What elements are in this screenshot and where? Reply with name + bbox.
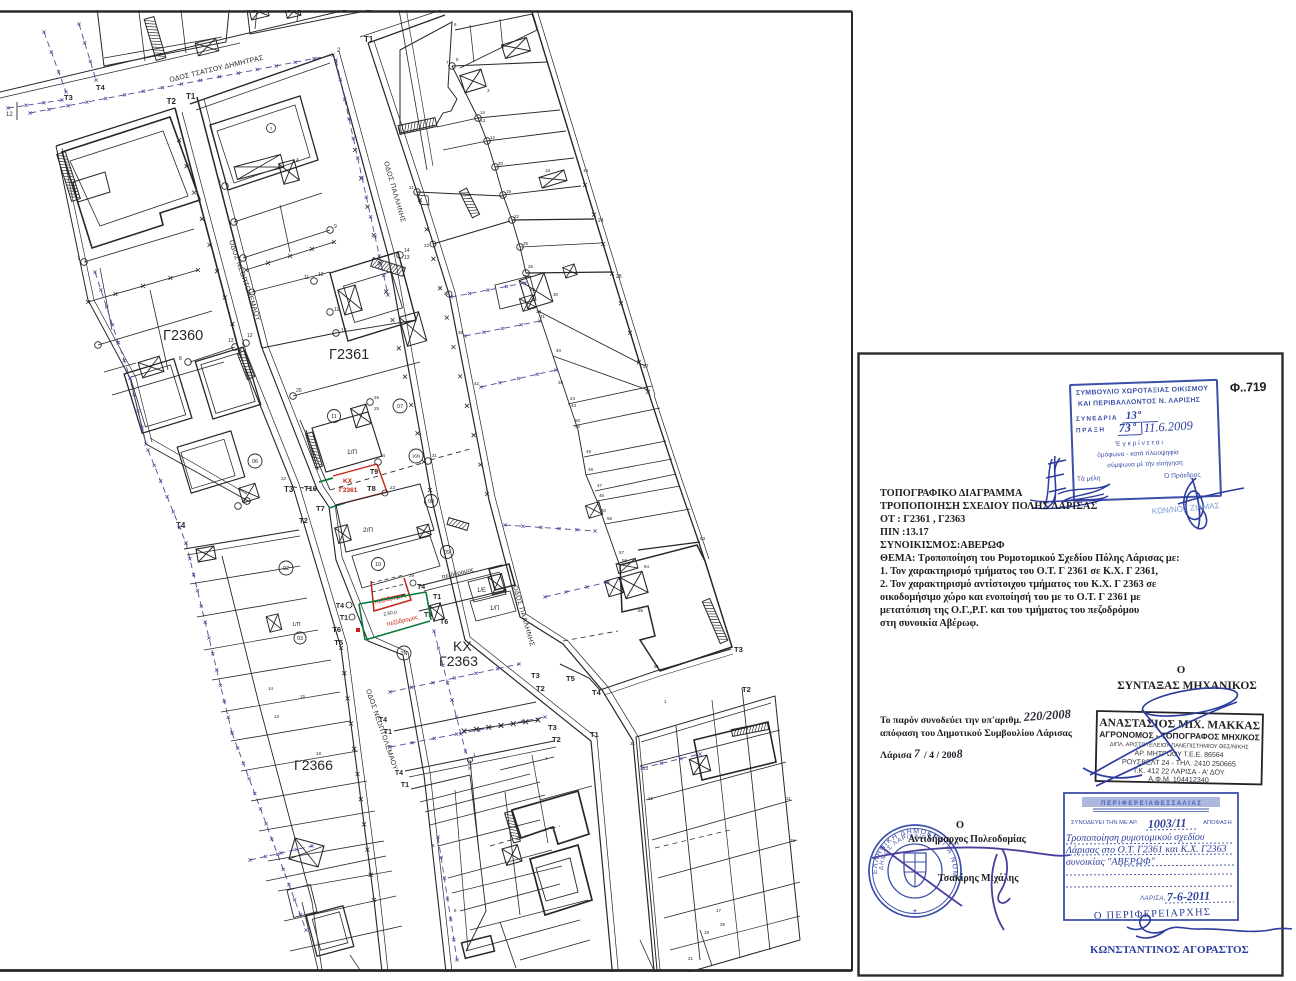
svg-text:58: 58 (607, 516, 613, 521)
svg-text:50: 50 (575, 418, 581, 423)
svg-text:15: 15 (300, 694, 306, 699)
svg-text:T3: T3 (284, 485, 294, 494)
svg-text:23: 23 (424, 243, 430, 248)
svg-text:ΣΥΝΟΔΕΥΕΙ ΤΗΝ ΜΕ ΑΡ.: ΣΥΝΟΔΕΥΕΙ ΤΗΝ ΜΕ ΑΡ. (1071, 820, 1138, 826)
svg-text:31: 31 (432, 453, 438, 458)
svg-text:11: 11 (304, 275, 309, 281)
svg-text:T8: T8 (367, 484, 376, 493)
svg-text:T1: T1 (186, 92, 196, 101)
svg-text:5: 5 (218, 179, 221, 185)
svg-text:21: 21 (688, 956, 694, 961)
svg-text:T4: T4 (395, 770, 403, 777)
svg-text:26: 26 (528, 264, 534, 269)
svg-text:16Ν: 16Ν (412, 454, 420, 459)
svg-text:ΠΙΝ :13.17: ΠΙΝ :13.17 (880, 527, 929, 538)
svg-text:Γ2361: Γ2361 (339, 487, 358, 494)
svg-text:T1: T1 (590, 730, 599, 739)
svg-text:25: 25 (523, 241, 529, 246)
svg-text:Τὰ μέλη: Τὰ μέλη (1077, 474, 1101, 483)
svg-text:Ο: Ο (1177, 664, 1186, 676)
svg-text:/ 4 / 200: / 4 / 200 (923, 750, 956, 761)
svg-text:13: 13 (404, 255, 410, 261)
svg-text:11: 11 (786, 796, 791, 801)
svg-text:Γ2366: Γ2366 (294, 757, 333, 773)
svg-text:ΚΧ: ΚΧ (453, 638, 472, 654)
svg-text:14: 14 (480, 110, 486, 115)
svg-text:21: 21 (630, 741, 636, 746)
svg-text:12: 12 (648, 796, 654, 801)
svg-text:06: 06 (252, 459, 258, 465)
svg-text:18: 18 (545, 168, 551, 173)
svg-text:42: 42 (474, 381, 480, 386)
svg-text:μετατόπιση της Ο.Γ.,Ρ.Γ. και τ: μετατόπιση της Ο.Γ.,Ρ.Γ. και του τμήματο… (880, 604, 1139, 616)
svg-text:Αντιδήμαρχος Πολεοδομίας: Αντιδήμαρχος Πολεοδομίας (908, 833, 1027, 845)
svg-text:03: 03 (297, 636, 303, 642)
svg-text:T2: T2 (552, 735, 561, 744)
svg-text:απόφαση του Δημοτικού Συμβουλί: απόφαση του Δημοτικού Συμβουλίου Λάρισας (880, 728, 1073, 739)
svg-text:Ο: Ο (956, 820, 964, 831)
svg-text:28: 28 (616, 274, 622, 280)
svg-text:T7: T7 (316, 504, 325, 513)
svg-text:συνοικίας "ΑΒΕΡΩΦ": συνοικίας "ΑΒΕΡΩΦ" (1066, 856, 1156, 868)
svg-text:οικοδομήσιμο χώρο και ενοποίησ: οικοδομήσιμο χώρο και ενοποίησή του με τ… (880, 591, 1141, 603)
svg-text:ΣΥΝΟΙΚΙΣΜΟΣ:ΑΒΕΡΩΦ: ΣΥΝΟΙΚΙΣΜΟΣ:ΑΒΕΡΩΦ (880, 540, 1005, 551)
svg-text:1/Π: 1/Π (292, 622, 301, 628)
svg-text:12: 12 (6, 112, 13, 118)
svg-text:Γ2361: Γ2361 (329, 347, 369, 363)
svg-text:T4: T4 (336, 603, 344, 610)
svg-text:22: 22 (514, 214, 520, 219)
svg-text:27: 27 (444, 291, 450, 296)
svg-text:ΤΟΠΟΓΡΑΦΙΚΟ ΔΙΑΓΡΑΜΜΑ: ΤΟΠΟΓΡΑΦΙΚΟ ΔΙΑΓΡΑΜΜΑ (880, 488, 1023, 499)
svg-text:13: 13 (228, 338, 234, 344)
svg-text:30: 30 (553, 292, 559, 297)
svg-text:10: 10 (318, 272, 324, 278)
svg-text:36: 36 (458, 330, 464, 335)
svg-text:Γ2363: Γ2363 (439, 653, 478, 669)
svg-text:στη συνοικία Αβέρωφ.: στη συνοικία Αβέρωφ. (880, 618, 979, 629)
svg-text:26: 26 (374, 395, 380, 400)
svg-text:T3: T3 (734, 645, 743, 654)
svg-text:ΣΥΝΕΔΡΙΑ: ΣΥΝΕΔΡΙΑ (1076, 415, 1118, 423)
svg-text:13: 13 (643, 766, 649, 771)
svg-text:1/Ε: 1/Ε (477, 588, 486, 594)
svg-text:ΘΕΜΑ: Τροποποίηση του Ρυμοτομι: ΘΕΜΑ: Τροποποίηση του Ρυμοτομικού Σχεδίο… (880, 553, 1180, 564)
svg-text:Α.Φ.Μ. 104412340: Α.Φ.Μ. 104412340 (1148, 774, 1209, 784)
svg-text:8: 8 (179, 356, 182, 362)
svg-text:ΤΡΟΠΟΠΟΙΗΣΗ ΣΧΕΔΙΟΥ ΠΟΛΗΣ ΛΑΡΙ: ΤΡΟΠΟΠΟΙΗΣΗ ΣΧΕΔΙΟΥ ΠΟΛΗΣ ΛΑΡΙΣΑΣ (880, 501, 1097, 512)
svg-text:T2: T2 (536, 684, 545, 693)
svg-text:Φ..719: Φ..719 (1230, 380, 1267, 395)
svg-text:18: 18 (316, 751, 322, 756)
svg-text:43: 43 (570, 396, 576, 401)
svg-text:Τροποποίηση ρυμοτομικού σχεδίο: Τροποποίηση ρυμοτομικού σχεδίου (1066, 832, 1205, 844)
svg-text:46: 46 (599, 493, 605, 498)
svg-text:39: 39 (558, 380, 564, 385)
svg-text:41: 41 (540, 314, 546, 319)
svg-text:21: 21 (409, 185, 415, 190)
svg-text:73: 73 (1118, 420, 1131, 435)
svg-text:ΟΤ : Γ2361 , Γ2363: ΟΤ : Γ2361 , Γ2363 (880, 514, 965, 525)
svg-text:14: 14 (404, 248, 410, 254)
svg-text:Λάρισα: Λάρισα (880, 750, 912, 761)
svg-text:T6: T6 (440, 619, 448, 626)
svg-text:1/Π: 1/Π (490, 606, 499, 612)
svg-text:47: 47 (597, 483, 603, 488)
svg-text:16: 16 (583, 168, 589, 173)
svg-text:T3: T3 (531, 671, 540, 680)
svg-text:23: 23 (390, 485, 396, 490)
svg-text:*: * (913, 908, 917, 919)
svg-text:T1: T1 (384, 729, 392, 736)
svg-text:T1: T1 (340, 615, 348, 622)
svg-text:ΠΡΑΞΗ: ΠΡΑΞΗ (1076, 426, 1106, 434)
svg-text:37: 37 (643, 364, 649, 370)
svg-text:2/Π: 2/Π (363, 527, 373, 534)
svg-text:09: 09 (444, 550, 450, 556)
svg-text:12: 12 (490, 135, 496, 140)
svg-text:20: 20 (296, 388, 302, 394)
svg-text:T4: T4 (417, 584, 425, 591)
svg-text:40: 40 (556, 348, 562, 353)
svg-text:53: 53 (700, 536, 706, 541)
svg-text:15: 15 (790, 838, 796, 843)
svg-text:22: 22 (281, 476, 287, 481)
svg-text:13: 13 (480, 118, 486, 123)
svg-text:24: 24 (598, 218, 604, 224)
svg-text:19: 19 (506, 189, 512, 194)
svg-text:T2: T2 (742, 685, 751, 694)
svg-text:T9: T9 (370, 469, 378, 476)
svg-text:43: 43 (571, 403, 577, 408)
svg-text:12: 12 (334, 307, 340, 313)
svg-text:Γ2360: Γ2360 (163, 328, 203, 344)
svg-text:T1: T1 (433, 594, 441, 601)
svg-text:9: 9 (334, 224, 337, 230)
svg-text:T1: T1 (401, 782, 409, 789)
svg-text:17: 17 (716, 908, 722, 913)
svg-text:2Ν: 2Ν (400, 651, 407, 657)
svg-text:T3: T3 (64, 93, 73, 102)
svg-text:48: 48 (588, 467, 594, 472)
svg-text:T5: T5 (566, 674, 575, 683)
svg-text:13: 13 (274, 714, 280, 719)
svg-text:2. Τον χαρακτηρισμό αντίστοιχο: 2. Τον χαρακτηρισμό αντίστοιχου τμήματος… (880, 578, 1157, 590)
svg-text:20: 20 (498, 161, 504, 166)
svg-text:25: 25 (720, 922, 726, 927)
svg-text:T2: T2 (167, 97, 177, 106)
svg-text:T2: T2 (299, 516, 308, 525)
svg-text:7-6-2011: 7-6-2011 (1167, 888, 1211, 904)
svg-text:08: 08 (428, 499, 434, 505)
svg-text:11: 11 (331, 414, 337, 420)
svg-text:12: 12 (247, 333, 253, 339)
svg-text:Το παρόν συνοδεύει την υπ'αριθ: Το παρόν συνοδεύει την υπ'αριθμ. (880, 715, 1022, 726)
svg-text:10: 10 (375, 562, 381, 568)
svg-text:ΑΠΟΦΑΣΗ: ΑΠΟΦΑΣΗ (1203, 820, 1232, 826)
svg-text:1003/11: 1003/11 (1148, 816, 1187, 831)
svg-text:7: 7 (77, 256, 80, 262)
svg-text:ΚΧ: ΚΧ (343, 478, 353, 485)
svg-text:24: 24 (380, 453, 386, 458)
svg-text:T5: T5 (334, 638, 343, 647)
svg-text:T6: T6 (332, 625, 341, 634)
svg-text:4: 4 (296, 158, 299, 164)
svg-text:T4: T4 (379, 717, 387, 724)
svg-text:ΛΑΡΙΣΑ,: ΛΑΡΙΣΑ, (1139, 895, 1166, 902)
svg-text:18: 18 (704, 930, 710, 935)
svg-text:T3: T3 (548, 723, 557, 732)
svg-text:25: 25 (374, 406, 380, 411)
svg-text:Π Ε Ρ Ι Φ Ε Ρ Ε Ι Α Θ Ε Σ Σ Α: Π Ε Ρ Ι Φ Ε Ρ Ε Ι Α Θ Ε Σ Σ Α Λ Ι Α Σ (1101, 801, 1201, 807)
svg-text:1/Π: 1/Π (347, 449, 357, 456)
svg-text:29: 29 (409, 573, 415, 578)
svg-text:54: 54 (644, 564, 650, 569)
svg-text:1. Τον χαρακτηρισμό τμήματος τ: 1. Τον χαρακτηρισμό τμήματος του Ο.Τ. Γ … (880, 565, 1158, 577)
svg-text:ΚΩΝΣΤΑΝΤΙΝΟΣ ΑΓΟΡΑΣΤΟΣ: ΚΩΝΣΤΑΝΤΙΝΟΣ ΑΓΟΡΑΣΤΟΣ (1090, 944, 1249, 956)
svg-text:T4: T4 (96, 83, 106, 92)
svg-text:07: 07 (397, 404, 403, 410)
svg-text:57: 57 (619, 550, 625, 555)
svg-text:60: 60 (601, 508, 607, 513)
svg-text:14: 14 (268, 686, 274, 691)
svg-text:49: 49 (586, 449, 592, 454)
svg-text:11.6.2009: 11.6.2009 (1143, 418, 1193, 435)
svg-text:T4: T4 (592, 688, 602, 697)
